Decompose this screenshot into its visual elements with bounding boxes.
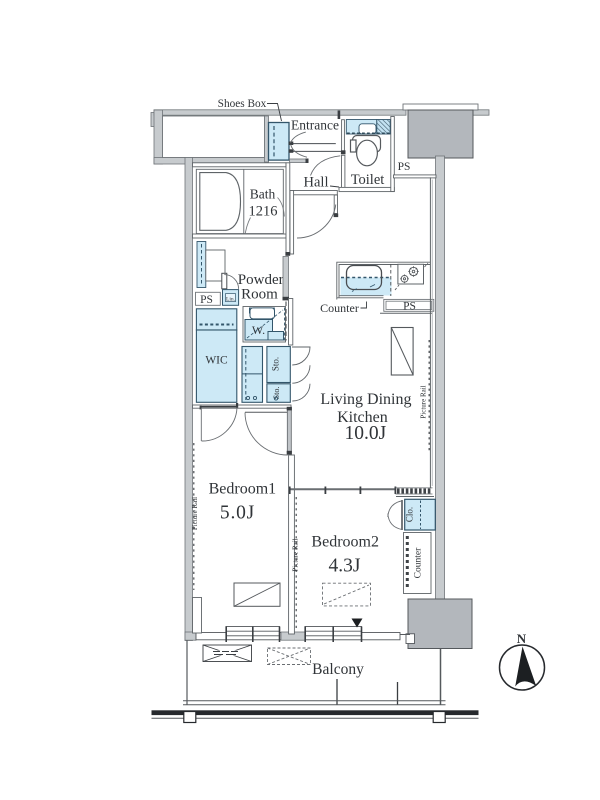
svg-text:PS: PS xyxy=(200,294,213,306)
svg-text:10.0J: 10.0J xyxy=(344,423,386,444)
svg-text:PS: PS xyxy=(398,161,411,173)
svg-text:Bedroom2: Bedroom2 xyxy=(311,534,379,551)
svg-text:Bedroom1: Bedroom1 xyxy=(209,481,277,498)
svg-text:Picture Rail: Picture Rail xyxy=(191,497,199,530)
svg-text:Sto.: Sto. xyxy=(271,357,281,371)
svg-text:4.3J: 4.3J xyxy=(329,556,361,577)
svg-text:WIC: WIC xyxy=(205,355,228,367)
svg-text:Hall: Hall xyxy=(304,175,329,191)
svg-text:5.0J: 5.0J xyxy=(220,503,255,524)
svg-text:Balcony: Balcony xyxy=(312,661,364,678)
svg-text:Clo.: Clo. xyxy=(405,507,415,522)
svg-text:Shoes Box: Shoes Box xyxy=(218,98,267,110)
svg-text:Bath: Bath xyxy=(250,187,276,202)
svg-text:Counter: Counter xyxy=(414,547,424,578)
svg-text:Counter: Counter xyxy=(320,301,359,315)
svg-text:Picture Rail: Picture Rail xyxy=(420,385,428,418)
svg-text:Room: Room xyxy=(241,287,278,303)
svg-text:Toilet: Toilet xyxy=(351,172,385,188)
svg-text:Picture Rail: Picture Rail xyxy=(292,538,300,571)
svg-text:Entrance: Entrance xyxy=(291,118,339,133)
svg-text:Living Dining: Living Dining xyxy=(320,391,411,408)
svg-text:N: N xyxy=(517,631,527,646)
svg-text:Lin.: Lin. xyxy=(226,296,236,302)
svg-text:PS: PS xyxy=(403,301,416,313)
svg-text:1216: 1216 xyxy=(249,204,278,220)
svg-text:Sto.: Sto. xyxy=(272,387,281,400)
